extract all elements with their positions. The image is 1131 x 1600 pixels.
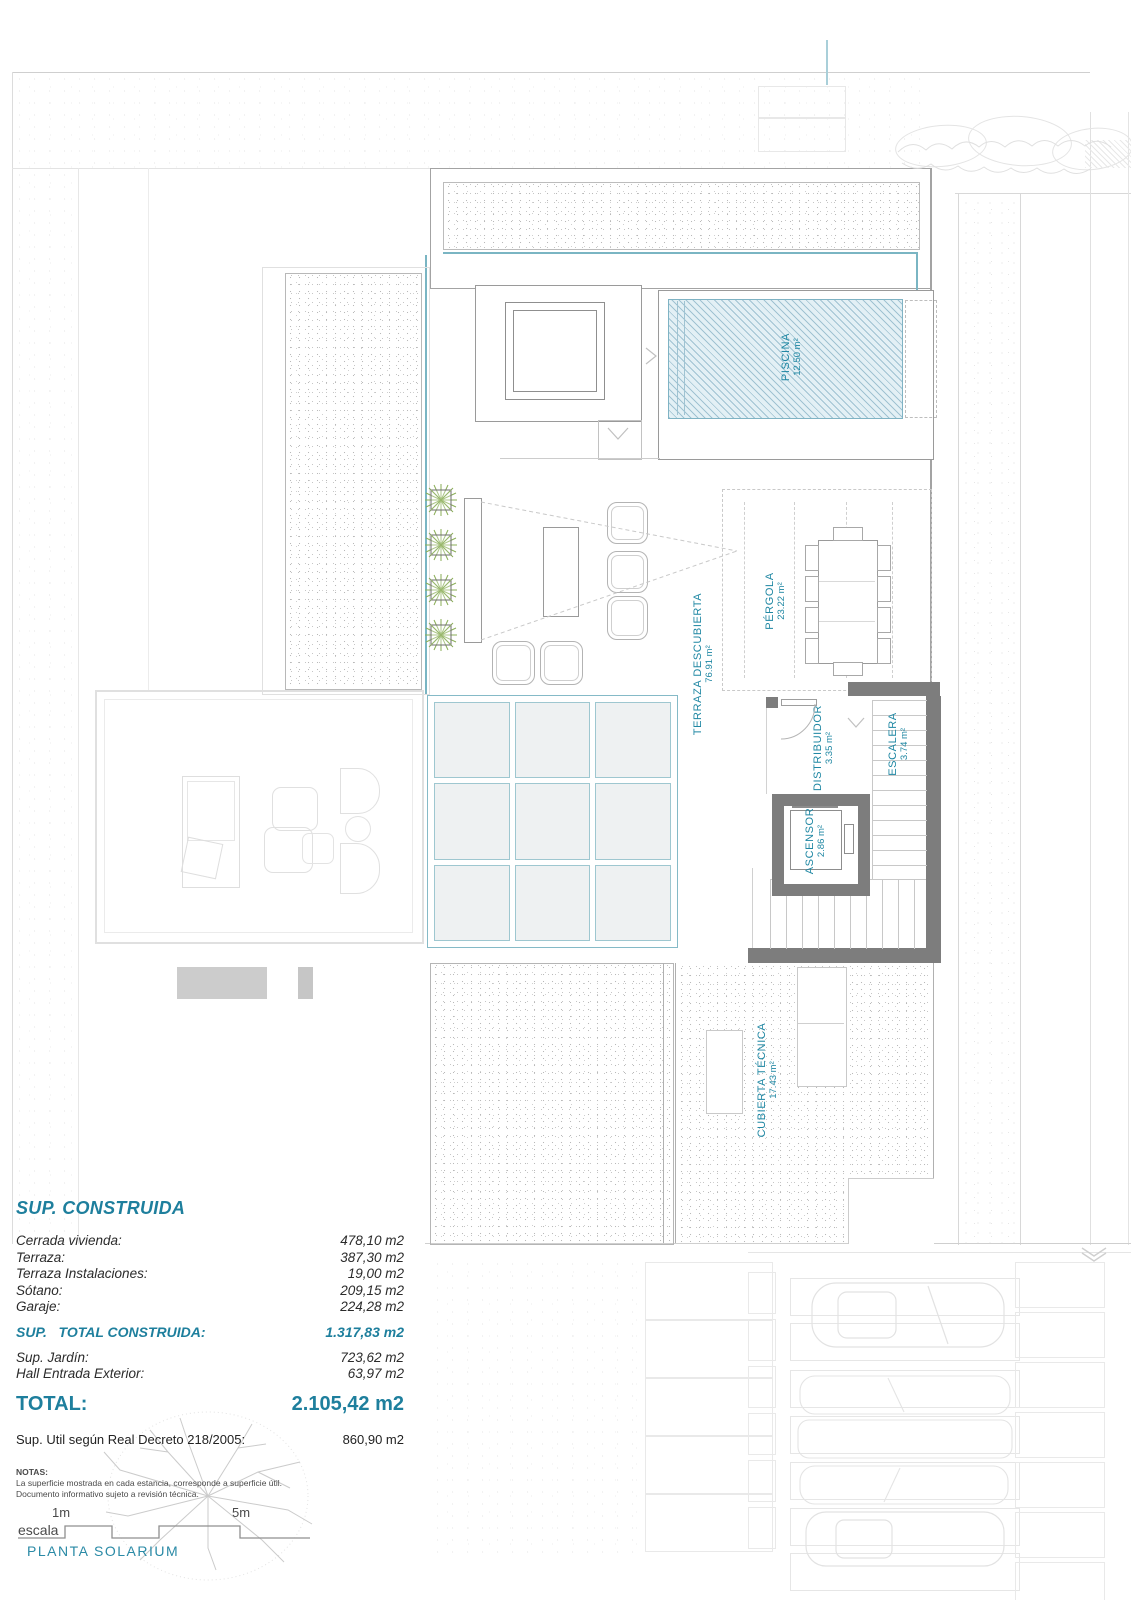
roof-equipment-divider — [798, 1023, 844, 1024]
area-value: 860,90 m2 — [343, 1432, 404, 1447]
gravel-area-left — [285, 273, 422, 690]
area-label: Terraza: — [16, 1250, 65, 1267]
side-parcel — [1015, 1462, 1105, 1508]
parking-bay — [790, 1370, 1020, 1408]
planter-icon — [424, 483, 458, 517]
area-value: 723,62 m2 — [340, 1350, 404, 1367]
lower-wall-segment — [177, 967, 267, 999]
parking-bay — [790, 1553, 1020, 1591]
plan-title: PLANTA SOLARIUM — [27, 1543, 179, 1559]
skylight-cell — [434, 702, 510, 778]
wall — [748, 948, 933, 963]
terrace-edge-teal — [443, 252, 918, 254]
area-value: 63,97 m2 — [348, 1366, 404, 1383]
area-label: Sótano: — [16, 1283, 63, 1300]
grand-total-row: TOTAL: 2.105,42 m2 — [16, 1393, 404, 1416]
skylight-cell — [434, 865, 510, 941]
area-row: Sup. Jardín: 723,62 m2 — [16, 1350, 404, 1367]
area-label: SUP. TOTAL CONSTRUIDA: — [16, 1324, 206, 1340]
area-row: Hall Entrada Exterior: 63,97 m2 — [16, 1366, 404, 1383]
areas-title: SUP. CONSTRUIDA — [16, 1198, 404, 1219]
neighbor-structure-outline — [758, 118, 846, 152]
skylight-cell — [595, 865, 671, 941]
dining-chair — [877, 576, 891, 602]
pergola-slat — [794, 502, 795, 678]
gravel-area-bottom-left — [430, 963, 674, 1245]
side-parcel — [1015, 1262, 1105, 1308]
area-label: Garaje: — [16, 1299, 60, 1316]
room-name: ESCALERA — [887, 712, 900, 776]
lower-wall-segment — [298, 967, 313, 999]
wall — [766, 697, 778, 708]
dining-chair — [805, 638, 819, 664]
wall — [848, 682, 940, 696]
dining-chair — [877, 638, 891, 664]
roof-equipment — [797, 967, 847, 1087]
dining-chair — [833, 662, 863, 676]
area-value: 1.317,83 m2 — [325, 1324, 404, 1340]
dining-chair — [877, 545, 891, 571]
area-value: 209,15 m2 — [340, 1283, 404, 1300]
area-label: Hall Entrada Exterior: — [16, 1366, 144, 1383]
skylight-cell — [434, 783, 510, 859]
notes-title: NOTAS: — [16, 1467, 404, 1478]
dining-chair — [805, 607, 819, 633]
planter-box — [464, 498, 482, 643]
plot-boundary-line — [748, 1252, 1131, 1253]
planter-icon — [424, 528, 458, 562]
ramp-segment — [748, 1319, 776, 1361]
skylight-grid — [427, 695, 678, 948]
area-label: Terraza Instalaciones: — [16, 1266, 148, 1283]
note-line: La superficie mostrada en cada estancia,… — [16, 1478, 404, 1489]
area-row: Terraza: 387,30 m2 — [16, 1250, 404, 1267]
area-label: Cerrada vivienda: — [16, 1233, 122, 1250]
pergola-slat — [744, 502, 745, 678]
door-swing-arc — [781, 704, 815, 739]
room-label-escalera: ESCALERA 3.74 m² — [887, 712, 911, 776]
ghost-armchair — [340, 768, 380, 814]
cubierta-wall-line — [663, 963, 664, 1243]
side-parcel — [1015, 1312, 1105, 1358]
side-parcel — [1015, 1512, 1105, 1558]
pool-side-platform — [905, 300, 937, 418]
plot-boundary-line — [78, 168, 79, 1244]
skylight-cell — [515, 865, 591, 941]
room-area: 23.22 m² — [777, 572, 788, 629]
room-label-terraza: TERRAZA DESCUBIERTA 76.91 m² — [692, 593, 716, 735]
parking-bay — [790, 1508, 1020, 1546]
plot-boundary-line — [955, 193, 1131, 194]
ghost-side-table — [345, 816, 371, 842]
area-row: Cerrada vivienda: 478,10 m2 — [16, 1233, 404, 1250]
dining-chair — [877, 607, 891, 633]
terrace-chair — [540, 641, 583, 685]
notes-block: NOTAS: La superficie mostrada en cada es… — [16, 1467, 404, 1501]
plot-boundary-line — [1090, 112, 1091, 1245]
parking-bay — [790, 1278, 1020, 1316]
pool-steps — [684, 301, 685, 415]
terrace-edge-teal — [916, 253, 918, 290]
ramp-segment — [748, 1413, 776, 1455]
side-parcel — [1015, 1562, 1105, 1600]
neighbor-structure-outline — [758, 86, 846, 118]
dining-table-line — [819, 581, 875, 582]
terrace-chair — [607, 502, 648, 544]
planter-icon — [424, 573, 458, 607]
area-value: 19,00 m2 — [348, 1266, 404, 1283]
terrace-chair — [492, 641, 535, 685]
room-name: CUBIERTA TÉCNICA — [756, 1023, 769, 1138]
roof-cutout — [848, 1178, 934, 1244]
plot-boundary-line — [1020, 193, 1021, 1245]
skylight-cell — [515, 783, 591, 859]
room-name: ASCENSOR — [804, 808, 817, 875]
parking-bay — [790, 1416, 1020, 1454]
scale-bar — [18, 1526, 310, 1538]
note-line: Documento informativo sujeto a revisión … — [16, 1489, 404, 1500]
room-label-pergola: PÉRGOLA 23.22 m² — [764, 572, 788, 629]
scale-5m-label: 5m — [232, 1505, 250, 1520]
wall — [926, 696, 941, 963]
skylight-cell — [595, 702, 671, 778]
room-label-ascensor: ASCENSOR 2.86 m² — [804, 808, 828, 875]
dining-table-line — [819, 621, 875, 622]
garden-texture-left — [12, 169, 78, 1243]
planter-icon — [424, 618, 458, 652]
area-label: Sup. Jardín: — [16, 1350, 89, 1367]
area-value: 224,28 m2 — [340, 1299, 404, 1316]
area-row: Garaje: 224,28 m2 — [16, 1299, 404, 1316]
dining-chair — [805, 576, 819, 602]
room-name: PISCINA — [780, 333, 793, 381]
ramp-segment — [748, 1366, 776, 1408]
areas-panel: SUP. CONSTRUIDA Cerrada vivienda: 478,10… — [16, 1198, 404, 1501]
ghost-pouf — [272, 787, 318, 831]
room-name: TERRAZA DESCUBIERTA — [692, 593, 705, 735]
scale-label: escala — [18, 1522, 58, 1538]
scale-1m-label: 1m — [52, 1505, 70, 1520]
room-area: 17.43 m² — [769, 1023, 780, 1138]
ghost-pillow — [181, 837, 224, 880]
skylight-cell — [595, 783, 671, 859]
room-label-distribuidor: DISTRIBUIDOR 3.35 m² — [812, 705, 836, 791]
pan-chevron-icon — [1082, 1248, 1106, 1261]
area-label: Sup. Util según Real Decreto 218/2005: — [16, 1432, 245, 1447]
side-parcel — [1015, 1412, 1105, 1458]
plot-boundary-line — [148, 168, 149, 690]
terrace-side-table — [543, 527, 579, 617]
plot-boundary-line — [958, 193, 959, 1245]
room-name: DISTRIBUIDOR — [812, 705, 825, 791]
area-value: 478,10 m2 — [340, 1233, 404, 1250]
room-name: PÉRGOLA — [764, 572, 777, 629]
cubierta-wall-line — [675, 963, 676, 1243]
parking-bay — [790, 1462, 1020, 1500]
parking-bay — [790, 1323, 1020, 1361]
garden-texture-bottom — [430, 1258, 640, 1558]
dining-chair — [805, 545, 819, 571]
area-row: Sótano: 209,15 m2 — [16, 1283, 404, 1300]
elevator-counterweight — [844, 824, 854, 854]
area-label: TOTAL: — [16, 1393, 87, 1416]
area-row: Terraza Instalaciones: 19,00 m2 — [16, 1266, 404, 1283]
garden-texture-right-strip — [960, 198, 1018, 1243]
area-value: 2.105,42 m2 — [292, 1393, 404, 1416]
util-row: Sup. Util según Real Decreto 218/2005: 8… — [16, 1432, 404, 1447]
dining-table — [818, 540, 878, 664]
hedge-hatch — [1085, 140, 1131, 168]
room-label-piscina: PISCINA 12.50 m² — [780, 333, 804, 381]
room-partition-line — [766, 700, 767, 794]
room-area: 3.74 m² — [900, 712, 911, 776]
room-area: 3.35 m² — [825, 705, 836, 791]
room-area: 12.50 m² — [793, 333, 804, 381]
total-construida-row: SUP. TOTAL CONSTRUIDA: 1.317,83 m2 — [16, 1324, 404, 1340]
room-area: 76.91 m² — [705, 593, 716, 735]
roof-equipment — [706, 1030, 743, 1114]
lower-floor-outline-inner — [104, 699, 413, 933]
dining-chair — [833, 527, 863, 541]
pergola-slat — [892, 502, 893, 678]
deck-edge-line — [500, 458, 660, 459]
room-partition-line — [752, 868, 753, 948]
step-box — [598, 420, 642, 460]
room-area: 2.86 m² — [817, 808, 828, 875]
skylight-cell — [515, 702, 591, 778]
ramp-segment — [748, 1460, 776, 1502]
room-label-cubierta: CUBIERTA TÉCNICA 17.43 m² — [756, 1023, 780, 1138]
pool-house-skylight-inner — [513, 310, 597, 392]
side-parcel — [1015, 1362, 1105, 1408]
terrace-chair — [607, 596, 648, 640]
pool-steps — [677, 301, 678, 415]
plot-boundary-line — [1128, 112, 1129, 1245]
ghost-pouf — [302, 833, 334, 864]
ramp-segment — [748, 1272, 776, 1314]
ghost-bed-inner — [187, 781, 235, 841]
floorplan-canvas: PISCINA 12.50 m² TERRAZA DESCUBIERTA 76.… — [0, 0, 1131, 1600]
ramp-segment — [748, 1507, 776, 1549]
gravel-band-top — [443, 182, 920, 250]
area-value: 387,30 m2 — [340, 1250, 404, 1267]
terrace-chair — [607, 551, 648, 593]
